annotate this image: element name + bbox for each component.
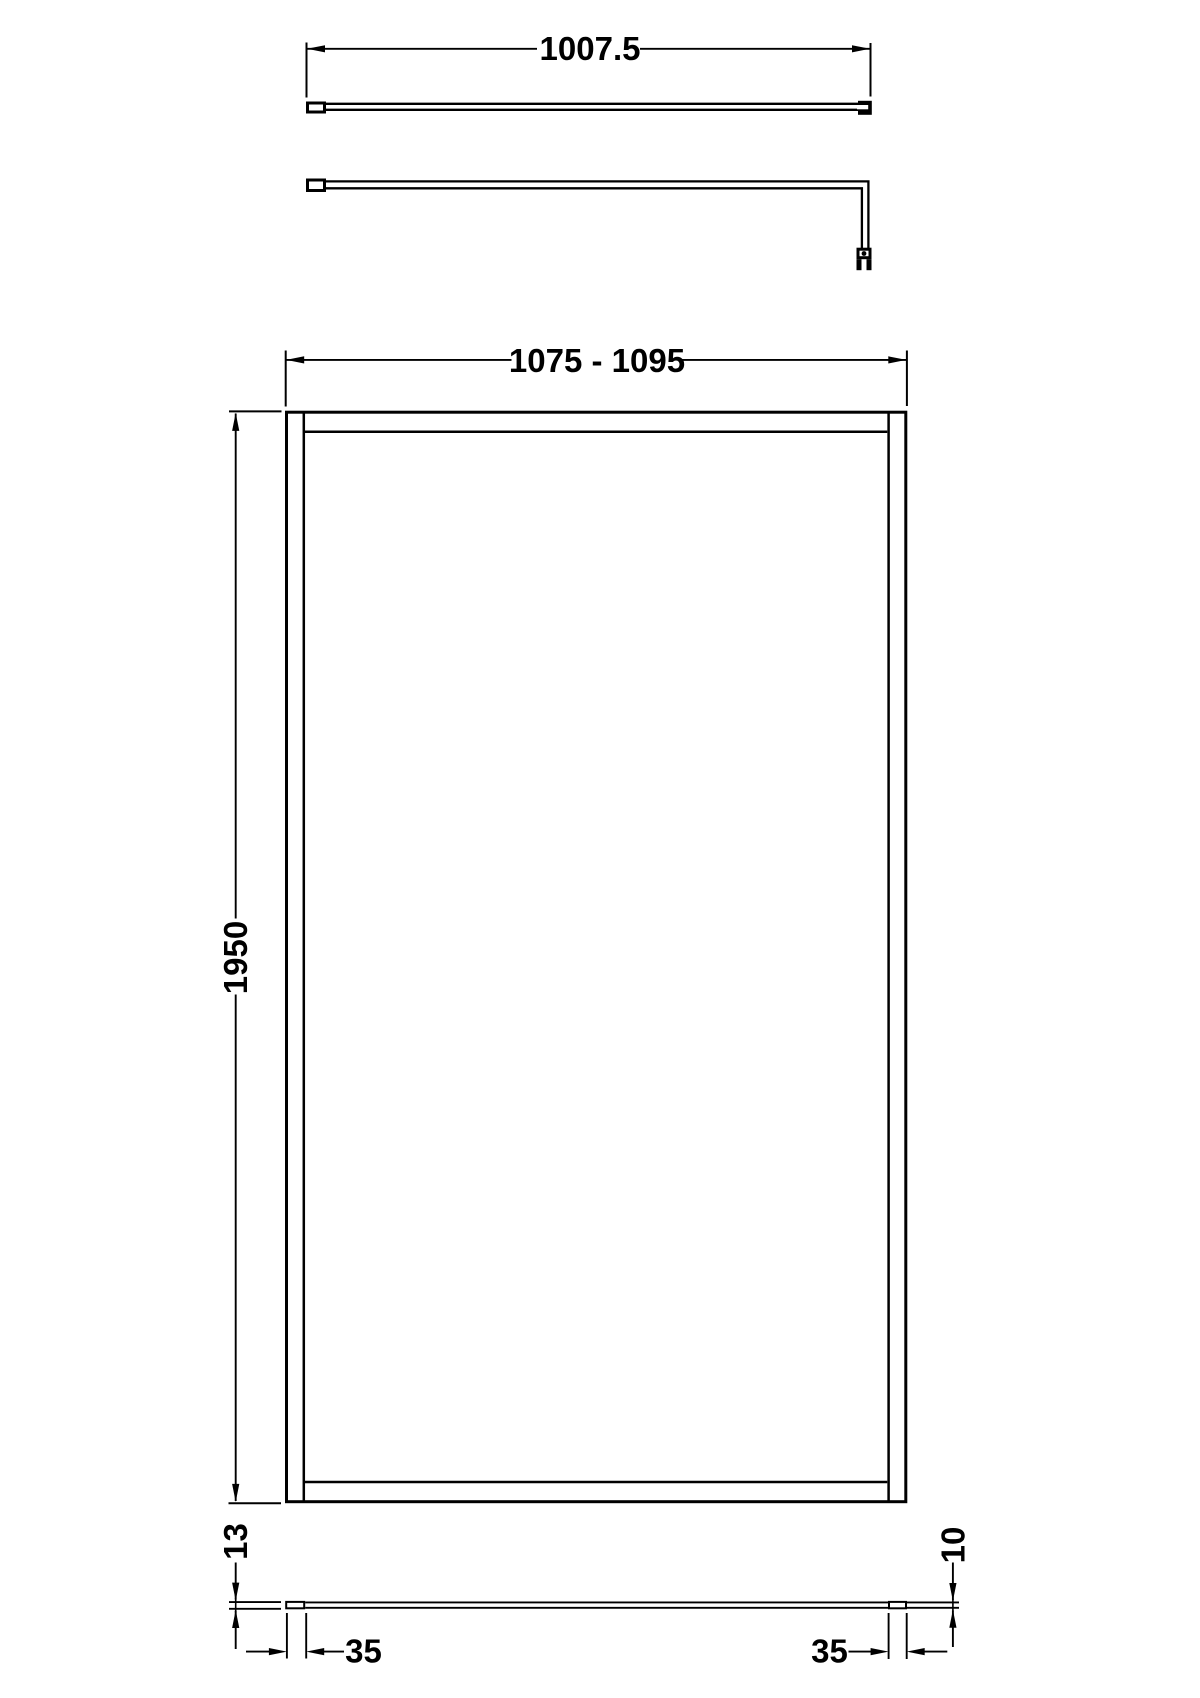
svg-text:35: 35 <box>345 1633 382 1670</box>
svg-text:1007.5: 1007.5 <box>540 30 641 67</box>
svg-text:1075 - 1095: 1075 - 1095 <box>509 342 685 379</box>
svg-text:13: 13 <box>217 1523 254 1560</box>
svg-text:35: 35 <box>811 1633 848 1670</box>
svg-text:1950: 1950 <box>217 921 254 994</box>
svg-text:10: 10 <box>934 1527 971 1564</box>
